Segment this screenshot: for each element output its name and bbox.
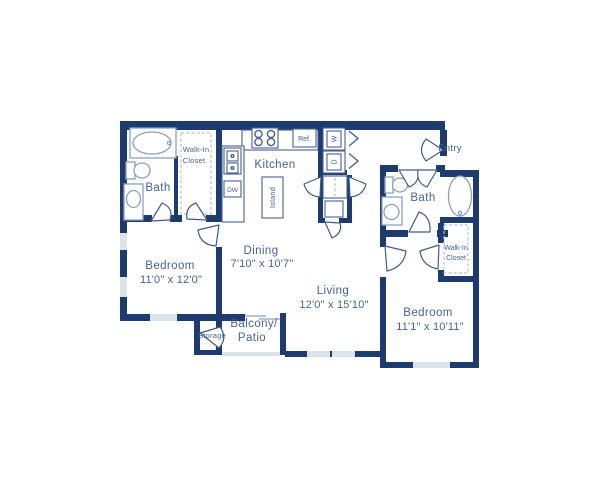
wall-segment — [285, 351, 307, 357]
washer-label: W — [332, 135, 339, 142]
floor-plan: DW Ref. Island W D — [0, 0, 600, 490]
sink-vanity-icon — [382, 197, 402, 225]
closet2-door-swing — [420, 245, 439, 269]
window — [332, 351, 355, 357]
living-dimensions: 12'0" x 15'10" — [299, 299, 368, 311]
bath2-door-swing — [418, 170, 437, 187]
wall-segment — [473, 170, 479, 368]
kitchen-label: Kitchen — [254, 159, 295, 171]
storage-label: Storage — [198, 331, 226, 340]
bedroom2-door-swing — [385, 246, 406, 271]
bifold-door-icon — [349, 131, 358, 146]
washer-icon: W — [323, 128, 345, 150]
wall-segment — [216, 121, 222, 222]
wall-segment — [170, 215, 182, 222]
wall-segment — [438, 223, 444, 243]
window — [150, 314, 177, 321]
wall-segment — [318, 218, 325, 223]
balcony-label-line1: Balcony/ — [230, 318, 278, 330]
wall-segment — [385, 362, 413, 368]
toilet-icon — [126, 162, 150, 179]
wall-segment — [216, 247, 222, 321]
wall-segment — [174, 156, 178, 215]
bedroom1-dimensions: 11'0" x 12'0" — [140, 274, 202, 286]
wall-segment — [280, 313, 286, 355]
bifold-door-icon — [349, 154, 358, 169]
hall-closet-door-swing — [304, 177, 321, 197]
kitchen-fixtures: DW Ref. Island — [222, 128, 318, 222]
hall-closets — [323, 176, 347, 217]
oven-icon — [224, 148, 241, 174]
closet1-door-swing — [187, 203, 207, 220]
laundry-closet: W D — [323, 128, 358, 173]
bedroom2-label: Bedroom — [403, 307, 452, 319]
walk-in-closet2-label-line2: Closet — [446, 255, 466, 262]
kitchen-island: Island — [262, 177, 283, 218]
dishwasher-label: DW — [227, 187, 239, 194]
refrigerator-icon: Ref. — [293, 129, 316, 147]
dining-dimensions: 7'10" x 10'7" — [231, 258, 294, 270]
window — [413, 362, 450, 368]
island-label: Island — [268, 187, 277, 208]
bedroom2-dimensions: 11'1" x 10'11" — [396, 321, 464, 333]
dining-label: Dining — [243, 245, 278, 257]
bedroom1-label: Bedroom — [145, 260, 194, 272]
bath2-bedroom-door-swing — [409, 212, 430, 232]
bathtub-icon — [449, 176, 472, 216]
sink-vanity-icon — [124, 184, 143, 220]
wall-segment — [120, 250, 127, 277]
living-label: Living — [317, 285, 349, 297]
walk-in-closet2-label-line1: Walk-In — [444, 245, 468, 252]
balcony-railing — [222, 352, 280, 356]
bath1-door-swing — [151, 203, 171, 221]
wall-segment — [330, 351, 332, 357]
entry-label: Entry — [438, 143, 462, 154]
bathtub-icon — [133, 132, 171, 154]
walk-in-closet1-label-line2: Closet — [183, 156, 206, 165]
floor-plan-page: DW Ref. Island W D — [0, 0, 600, 490]
dishwasher-icon: DW — [224, 181, 241, 197]
wall-segment — [450, 362, 475, 368]
wall-segment — [380, 277, 386, 368]
water-heater-icon — [325, 201, 343, 217]
dryer-icon: D — [323, 151, 345, 173]
wall-segment — [438, 276, 478, 282]
stove-icon — [252, 128, 278, 148]
bath1-label: Bath — [145, 182, 170, 194]
bedroom1-door-swing — [198, 225, 219, 246]
window — [120, 277, 127, 297]
balcony-label-line2: Patio — [238, 332, 266, 344]
wall-segment — [440, 217, 478, 223]
refrigerator-label: Ref. — [298, 136, 311, 143]
tub-faucet-icon — [167, 141, 170, 144]
window — [120, 233, 127, 250]
wall-segment — [380, 230, 408, 237]
bath2-label: Bath — [410, 192, 435, 204]
utility-door-swing — [325, 222, 341, 238]
wall-segment — [339, 218, 352, 223]
tub-faucet-icon — [458, 211, 461, 214]
walk-in-closet1-label-line1: Walk-In — [183, 145, 210, 154]
wall-segment — [121, 314, 150, 321]
hall-closet-door-swing — [349, 177, 366, 197]
dryer-label: D — [332, 159, 339, 164]
window — [307, 351, 330, 357]
